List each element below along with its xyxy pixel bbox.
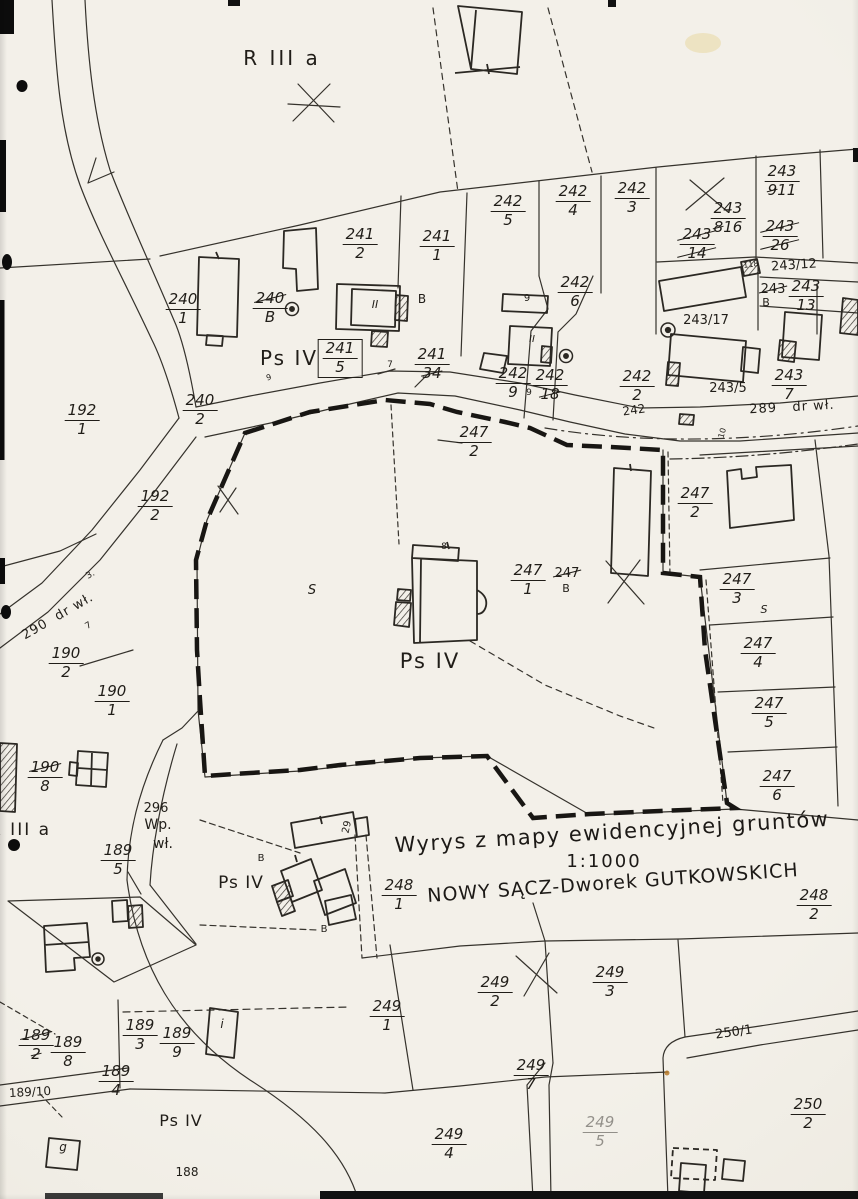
parcel-240-8-struck: 240B bbox=[253, 291, 288, 326]
parcel-247-2-west: 2472 bbox=[457, 425, 492, 460]
parcel-190-1: 1901 bbox=[95, 684, 130, 719]
soil-class-psiv-farm: Ps IV bbox=[218, 875, 264, 893]
parcel-189-5: 1895 bbox=[101, 843, 136, 878]
parcel-247-5: 2475 bbox=[752, 696, 787, 731]
parcel-250-2: 2502 bbox=[791, 1097, 826, 1132]
parcel-242-4: 2424 bbox=[556, 184, 591, 219]
point-mark-9: 9 bbox=[526, 389, 532, 398]
parcel-249-5: 2495 bbox=[583, 1115, 618, 1150]
parcel-189-8: 1898 bbox=[51, 1035, 86, 1070]
parcel-247-4: 2474 bbox=[741, 636, 776, 671]
tick-label-10-road: 10 bbox=[718, 427, 729, 439]
soil-class-r3a-left: R III a bbox=[0, 822, 51, 840]
building-mark-b-243: B bbox=[762, 297, 770, 309]
building-mark-i: i bbox=[220, 1018, 223, 1031]
parcel-241-1: 2411 bbox=[420, 229, 455, 264]
parcel-247-3: 2473 bbox=[720, 572, 755, 607]
tick-label-7-sw: 7 bbox=[84, 621, 94, 632]
parcel-192-1: 1921 bbox=[65, 403, 100, 438]
soil-class-psiv-top: Ps IV bbox=[260, 348, 318, 369]
land-use-s-mid: S bbox=[308, 584, 316, 598]
parcel-248-2: 2482 bbox=[797, 888, 832, 923]
parcel-248-1: 2481 bbox=[382, 878, 417, 913]
mark-118: 118 bbox=[743, 260, 759, 270]
parcel-241-34-struck: 24134 bbox=[415, 347, 450, 382]
parcel-242-18-struck: 24218 bbox=[533, 368, 568, 403]
road-label-290: 290 dr wł. bbox=[20, 591, 96, 643]
building-mark-b-farm-bottom: B bbox=[321, 925, 328, 936]
storeys-mark-241: II bbox=[372, 299, 379, 311]
soil-class-psiv-mid: Ps IV bbox=[400, 650, 460, 672]
parcel-247-2-east: 2472 bbox=[678, 486, 713, 521]
parcel-247-6: 2476 bbox=[760, 769, 795, 804]
parcel-188: 188 bbox=[176, 1166, 199, 1179]
parcel-296: 296 bbox=[144, 802, 169, 816]
building-mark-g: g bbox=[59, 1141, 67, 1154]
parcel-242-9: 2429 bbox=[496, 366, 531, 401]
parcel-243-12: 243/12 bbox=[771, 257, 818, 274]
parcel-243-7: 2437 bbox=[772, 368, 807, 403]
road-parcel-250-1: 250/1 bbox=[714, 1023, 753, 1042]
parcel-243-14-struck: 24314 bbox=[680, 227, 715, 262]
parcel-249-3: 2493 bbox=[593, 965, 628, 1000]
parcel-242-3: 2423 bbox=[615, 181, 650, 216]
parcel-249-4: 2494 bbox=[432, 1127, 467, 1162]
parcel-189-10: 189/10 bbox=[9, 1085, 52, 1100]
cadastral-map-sheet: R III a240124122411242524242423242624391… bbox=[0, 0, 858, 1199]
map-scale: 1:1000 bbox=[566, 851, 641, 872]
building-number-29: 29 bbox=[342, 820, 355, 835]
parcel-247-1: 2471 bbox=[511, 563, 546, 598]
tick-label-3: 3. bbox=[85, 569, 97, 581]
parcel-189-9: 1899 bbox=[160, 1026, 195, 1061]
building-mark-b-247: B bbox=[562, 583, 570, 595]
soil-class-r3a-top: R III a bbox=[243, 48, 321, 69]
parcel-243-5: 243/5 bbox=[709, 382, 746, 396]
parcel-240-2: 2402 bbox=[183, 393, 218, 428]
parcel-240-1: 2401 bbox=[166, 292, 201, 327]
building-mark-8: 8 bbox=[441, 543, 447, 552]
parcel-243-struck: 243 bbox=[761, 283, 786, 297]
parcel-242-6: 2426 bbox=[558, 275, 593, 310]
parcel-242-5: 2425 bbox=[491, 194, 526, 229]
road-parcel-242: 242 bbox=[622, 402, 646, 418]
parcel-241-5: 2415 bbox=[318, 339, 363, 378]
parcel-243-13: 24313 bbox=[789, 279, 824, 314]
parcel-242-2: 2422 bbox=[620, 369, 655, 404]
building-mark-b-241: B bbox=[418, 293, 426, 306]
parcel-189-3: 1893 bbox=[123, 1018, 158, 1053]
parcel-190-2: 1902 bbox=[49, 646, 84, 681]
road-label-289: 289 dr wł. bbox=[749, 399, 835, 417]
parcel-189-4: 1894 bbox=[99, 1064, 134, 1099]
storeys-mark-242: II bbox=[529, 335, 535, 346]
land-use-s-right: S bbox=[761, 604, 768, 616]
parcel-189-2-struck: 1892 bbox=[19, 1028, 54, 1063]
parcel-241-2: 2412 bbox=[343, 227, 378, 262]
parcel-243-26-struck: 24326 bbox=[763, 219, 798, 254]
parcel-192-2: 1922 bbox=[138, 489, 173, 524]
parcel-249-1: 2491 bbox=[370, 999, 405, 1034]
soil-class-psiv-bottom: Ps IV bbox=[159, 1113, 202, 1130]
building-mark-b-farm-top: B bbox=[258, 854, 265, 865]
parcel-249-2: 2492 bbox=[478, 975, 513, 1010]
parcel-243-9-renum-11: 243911 bbox=[765, 164, 800, 199]
land-use-wp: Wp. bbox=[144, 818, 171, 833]
parcel-247-struck: 247 bbox=[555, 567, 580, 581]
building-mark-9: 9 bbox=[524, 294, 530, 305]
land-use-wl: wł. bbox=[153, 837, 173, 852]
map-labels-layer: R III a240124122411242524242423242624391… bbox=[0, 0, 858, 1199]
parcel-243-17: 243/17 bbox=[683, 314, 729, 328]
tick-label-9-road: 9 bbox=[265, 373, 272, 382]
parcel-190-8-struck: 1908 bbox=[28, 760, 63, 795]
tick-label-7-road: 7 bbox=[387, 361, 393, 370]
parcel-249-7: 2497 bbox=[514, 1058, 549, 1093]
